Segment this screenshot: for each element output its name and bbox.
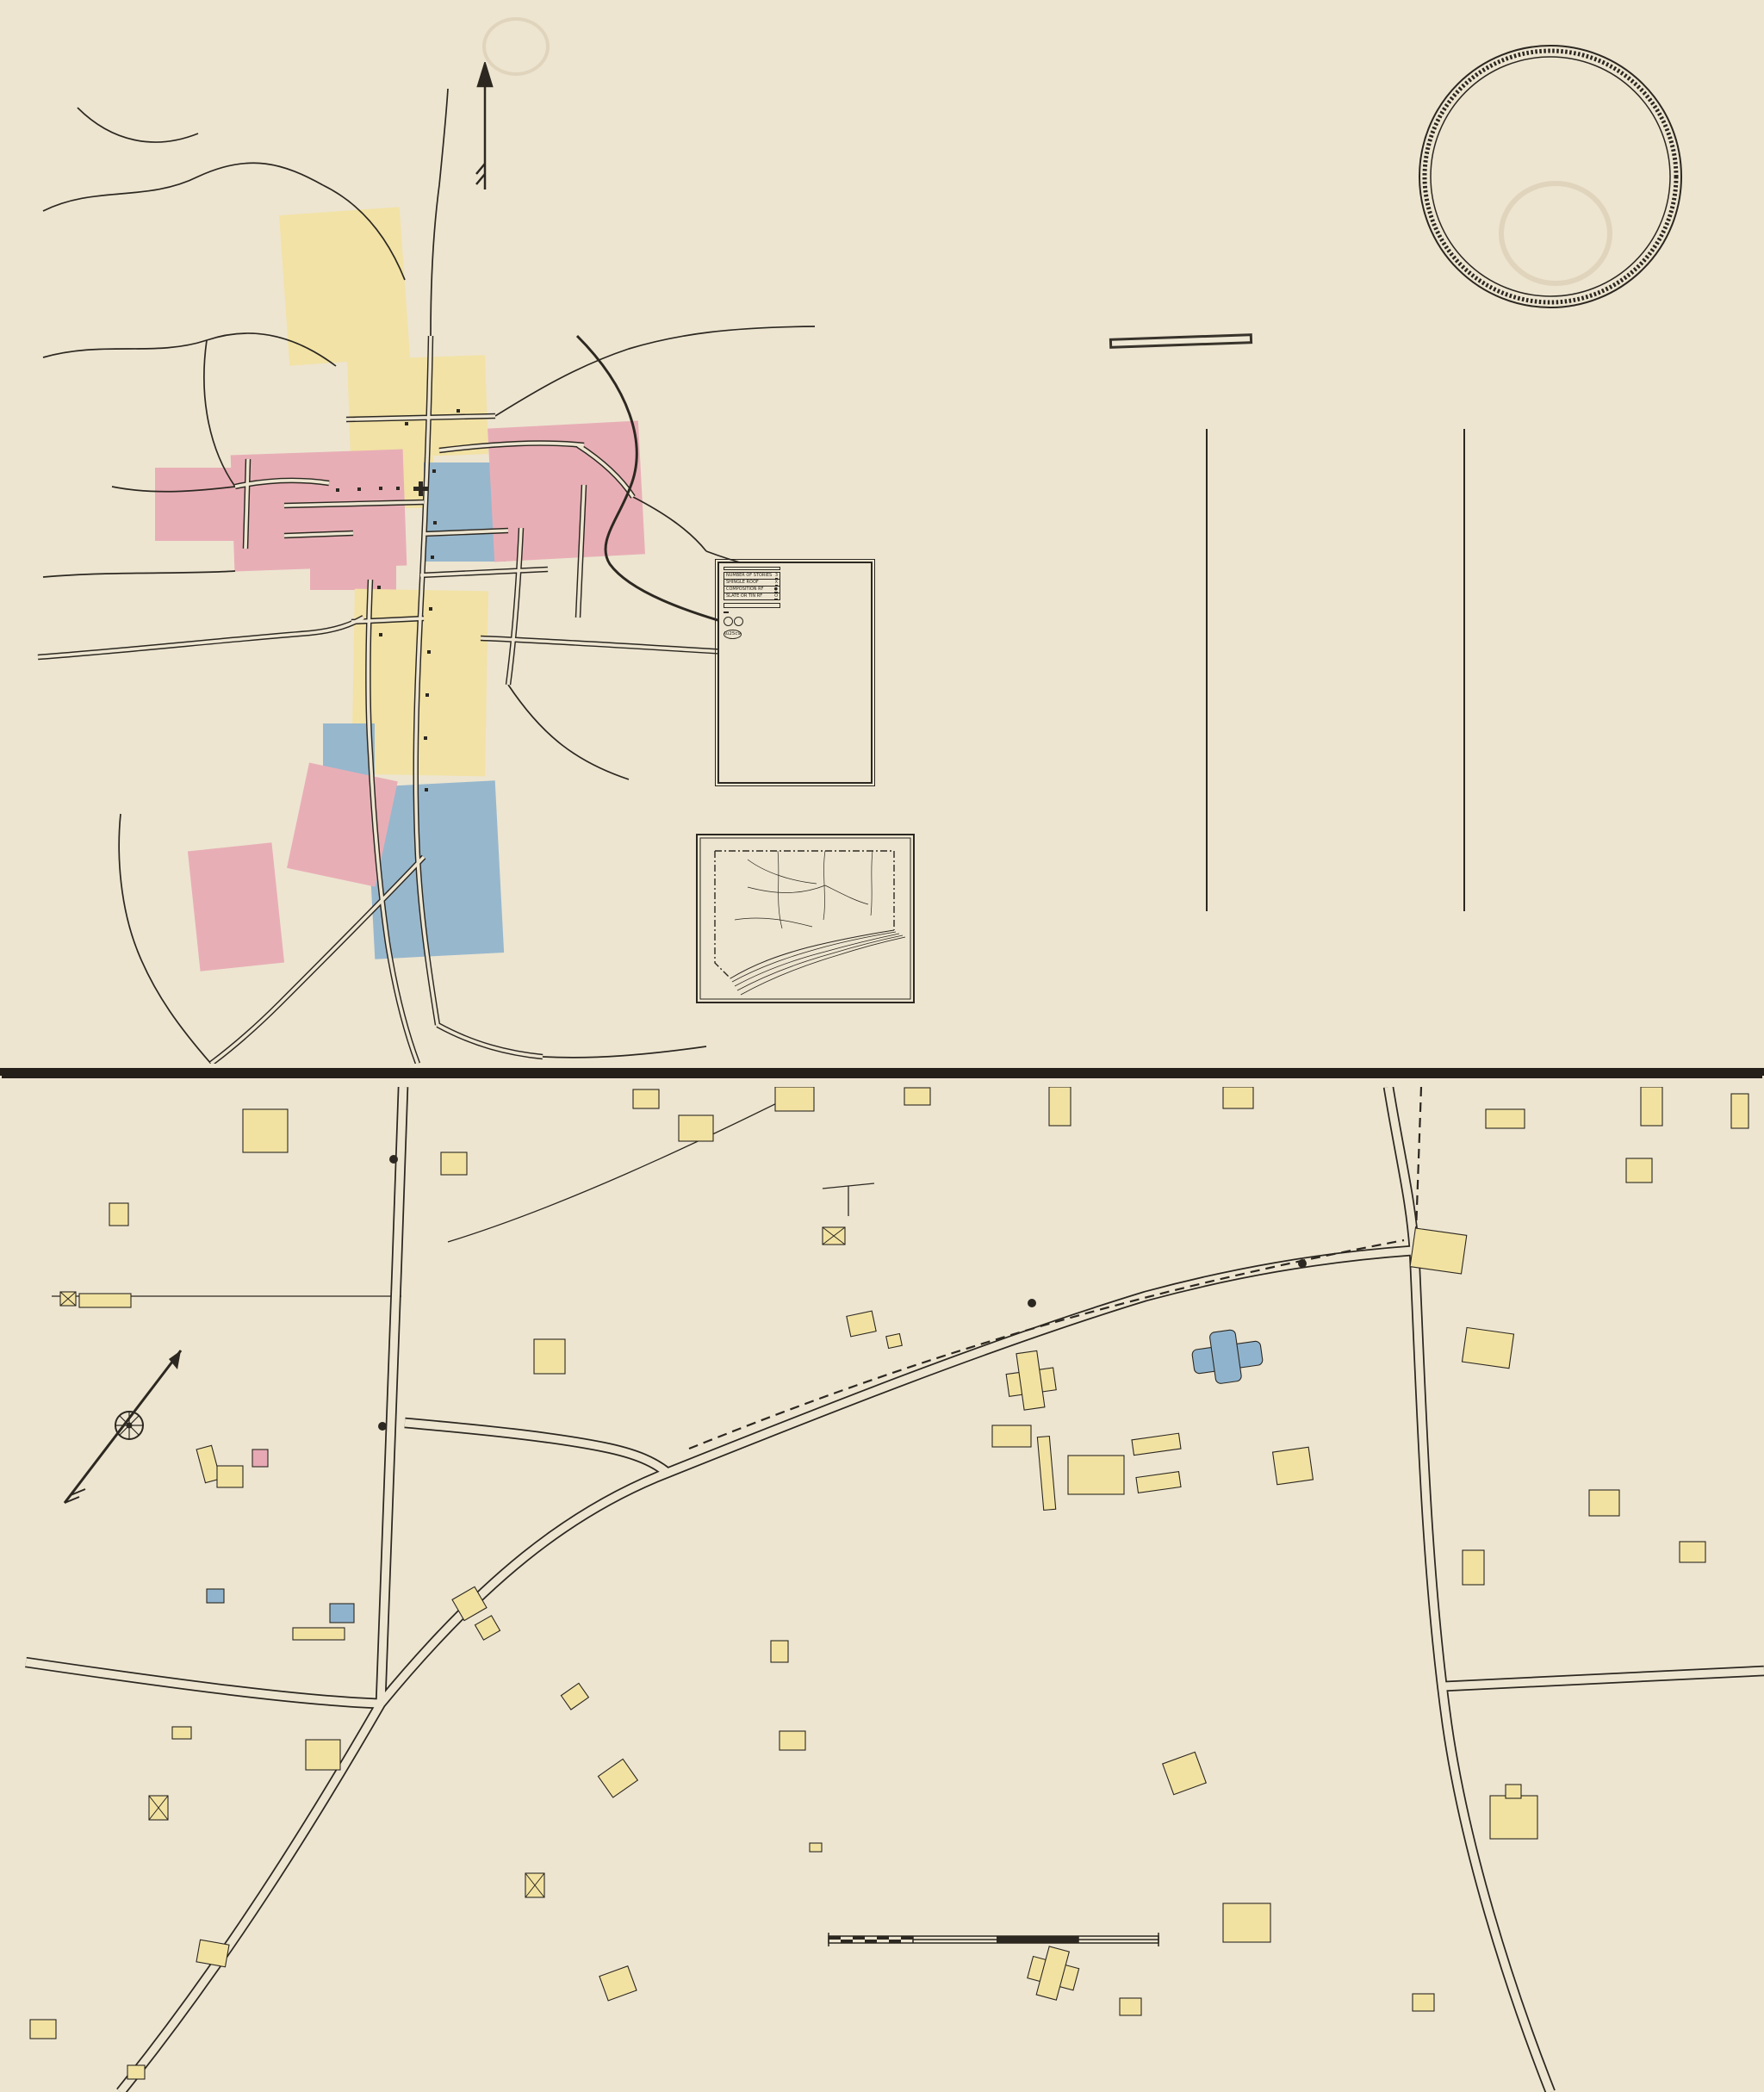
index-column-rule — [1206, 429, 1208, 911]
connecticut-inset-map — [696, 834, 915, 1003]
index-column-rule — [1463, 429, 1465, 911]
scale-bar-graphic — [818, 1933, 1180, 1946]
scale-bar — [818, 1921, 1180, 1953]
section-divider — [0, 1068, 1764, 1076]
sanborn-seal — [1413, 39, 1688, 318]
map-key-legend: NUMBER OF STORIES3SHINGLE ROOFXCOMPOSITI… — [717, 562, 873, 784]
index-streets-col1 — [959, 403, 1204, 429]
scale-ticks — [818, 1921, 1180, 1933]
compass-rose — [65, 1350, 181, 1503]
sanborn-map-sheet: NUMBER OF STORIES3SHINGLE ROOFXCOMPOSITI… — [0, 0, 1764, 2092]
library-of-congress-stamp — [1109, 333, 1252, 349]
index-buildings-col3 — [1469, 405, 1751, 431]
key-windows-note — [724, 567, 780, 570]
notes-block — [814, 122, 1400, 129]
water-pipes — [689, 1087, 1421, 1449]
detail-street-map — [0, 1087, 1764, 2092]
key-roof-table: NUMBER OF STORIES3SHINGLE ROOFXCOMPOSITI… — [724, 572, 780, 600]
key-steam-boiler — [724, 603, 780, 608]
index-streets-col2 — [1213, 405, 1461, 431]
district-tints — [155, 207, 645, 971]
stable-symbol — [724, 611, 729, 613]
sprinkler-icon: \u25c9 — [724, 630, 742, 639]
property-lines — [52, 1087, 874, 1296]
